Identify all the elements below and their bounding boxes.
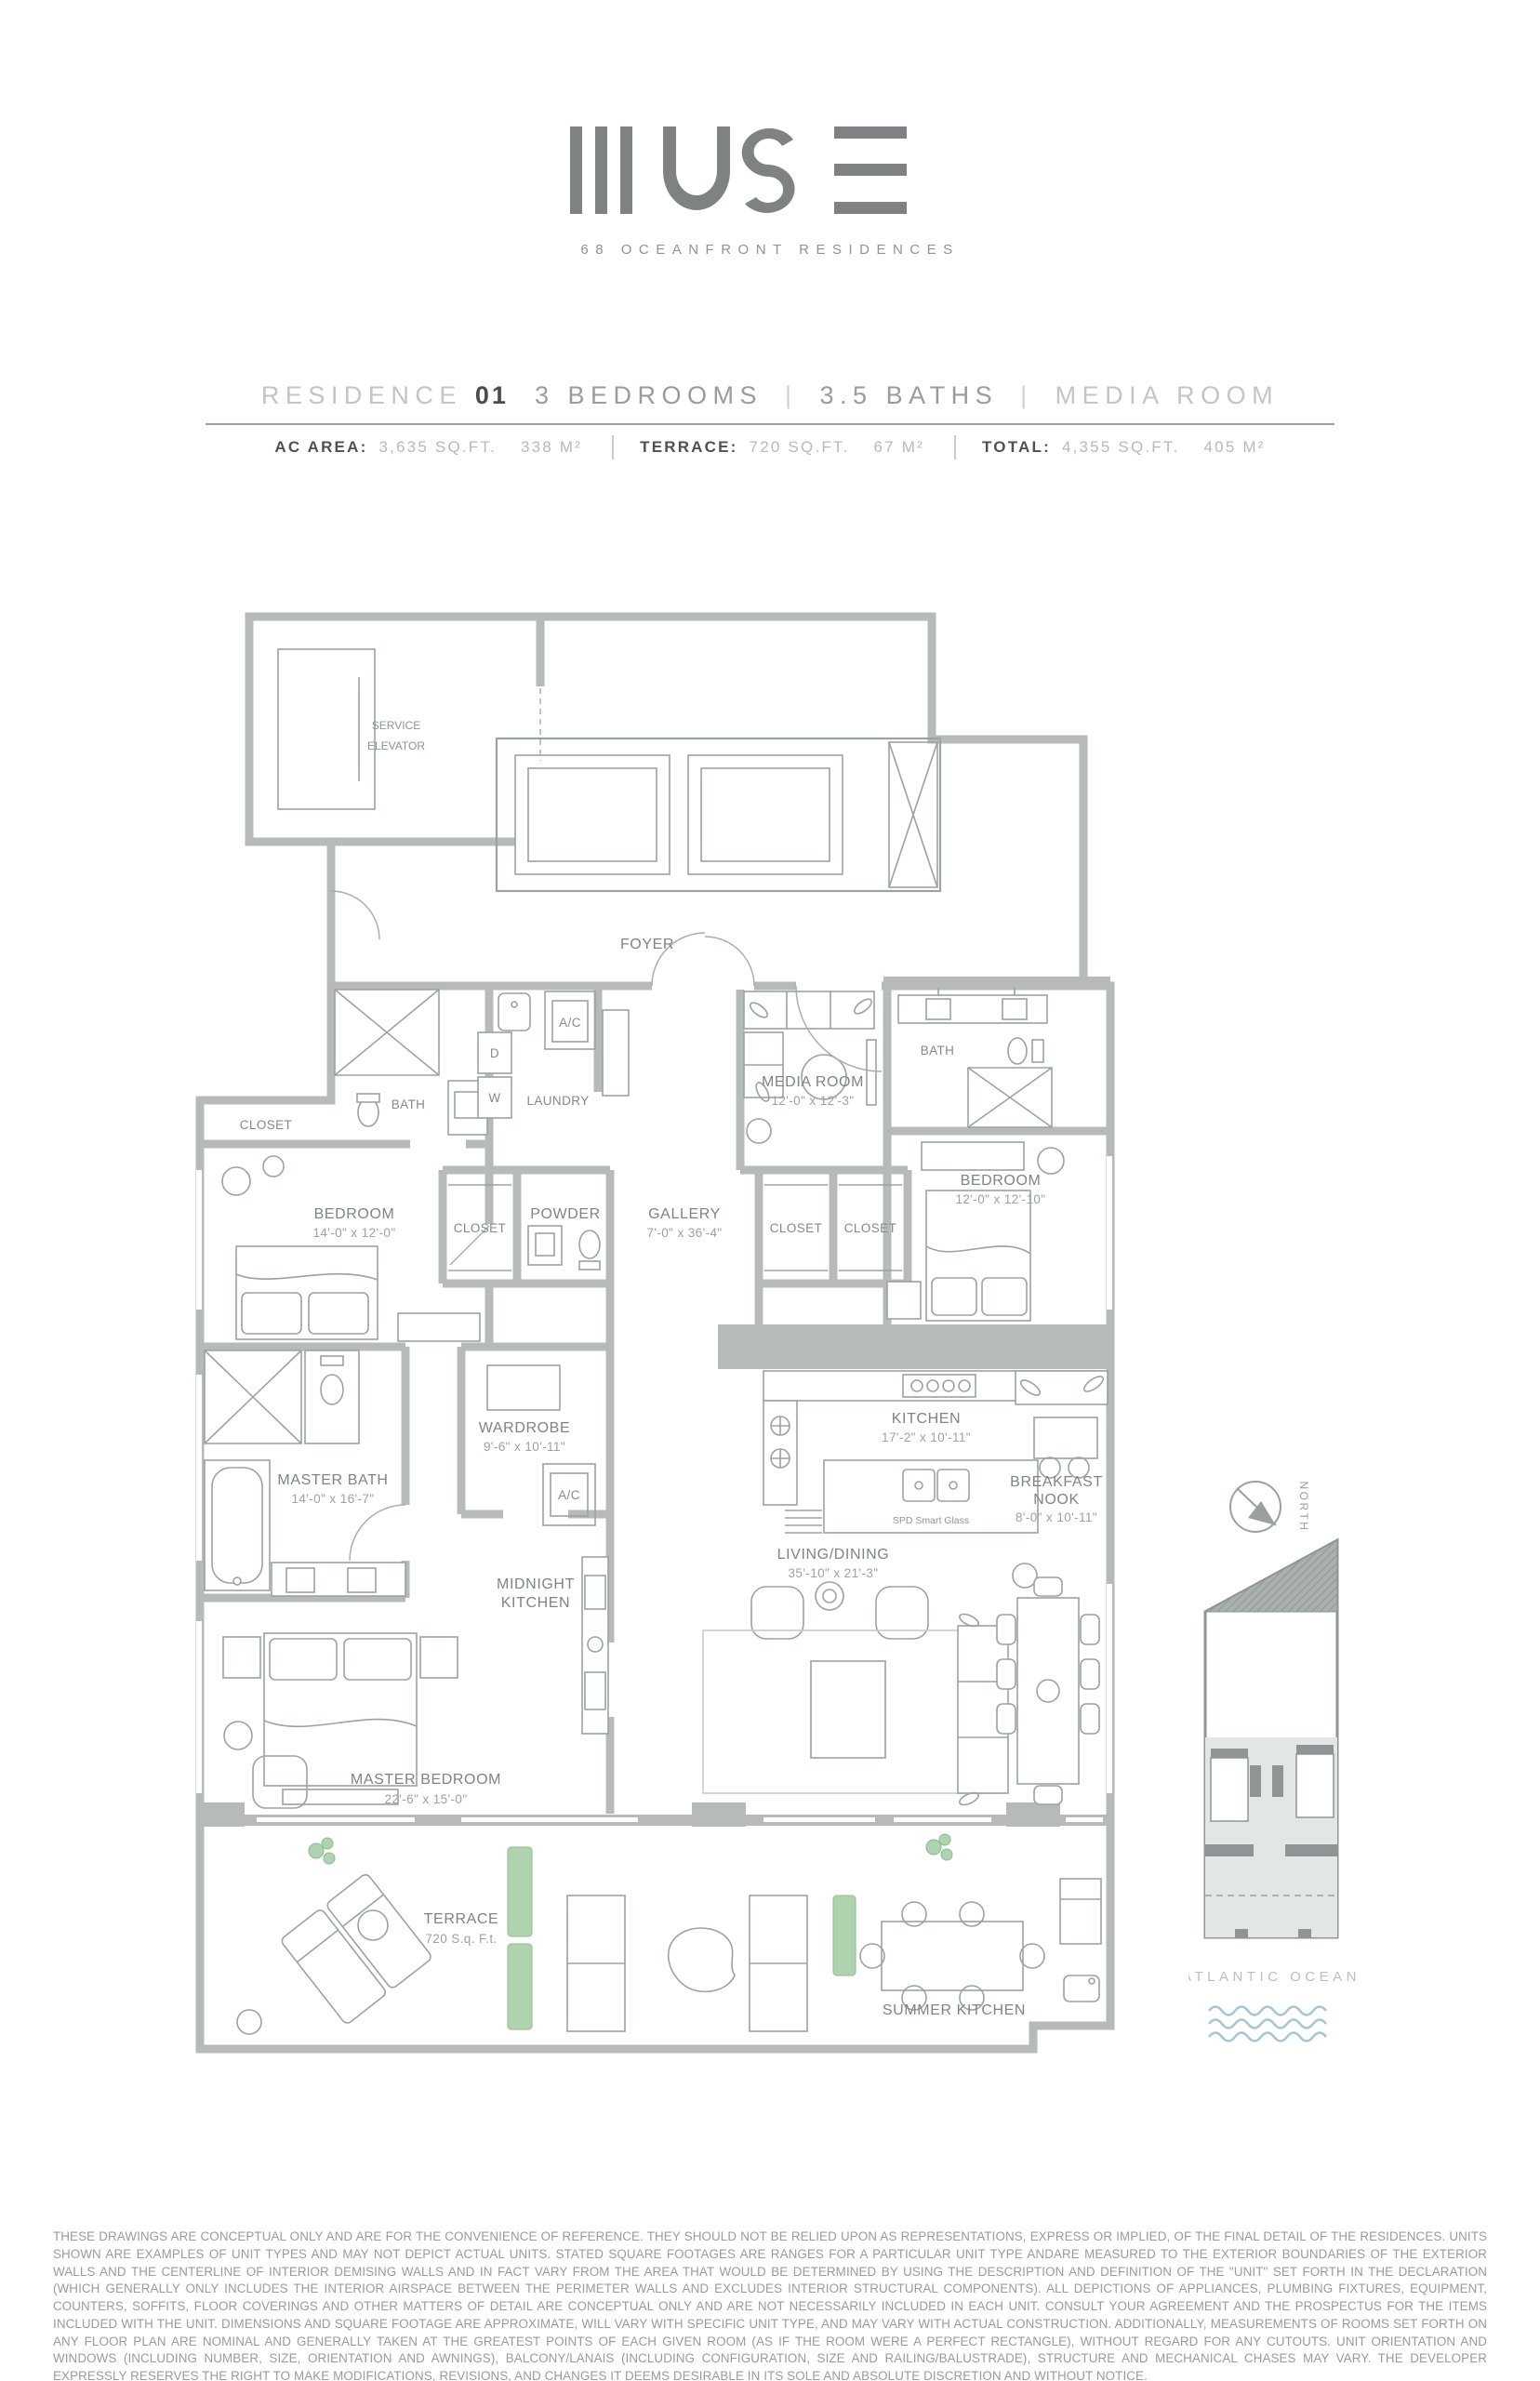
brand-tagline: 68 OCEANFRONT RESIDENCES (580, 242, 959, 258)
label-terrace: TERRACE (424, 1911, 499, 1927)
baths-label: 3.5 BATHS (820, 381, 999, 409)
label-foyer: FOYER (620, 937, 674, 952)
residence-title: RESIDENCE 01 3 BEDROOMS | 3.5 BATHS | ME… (206, 381, 1334, 410)
total-sqft: 4,355 SQ.FT. (1062, 438, 1180, 457)
label-service-elevator: SERVICE (372, 719, 420, 732)
label-closet-1: CLOSET (240, 1118, 292, 1132)
ac-area-label: AC AREA: (274, 438, 367, 457)
label-bath-2: BATH (921, 1044, 955, 1057)
brand-logo: 68 OCEANFRONT RESIDENCES (0, 126, 1540, 258)
spec-divider (954, 435, 956, 459)
label-wardrobe: WARDROBE (479, 1420, 570, 1436)
label-spd-glass: SPD Smart Glass (893, 1515, 969, 1526)
separator: | (1011, 381, 1042, 409)
terrace-label: TERRACE: (640, 438, 737, 457)
label-washer: W (488, 1091, 500, 1105)
total-m2: 405 M² (1204, 438, 1266, 457)
label-powder: POWDER (530, 1206, 601, 1222)
floorplan-page: 68 OCEANFRONT RESIDENCES RESIDENCE 01 3 … (0, 0, 1540, 2381)
residence-label: RESIDENCE (261, 381, 462, 409)
floorplan-drawing: SERVICE ELEVATOR FOYER BATH LAUNDRY D W … (182, 575, 1122, 2060)
svg-text:35'-10" x 21'-3": 35'-10" x 21'-3" (789, 1566, 879, 1580)
separator: | (776, 381, 807, 409)
bedrooms-label: 3 BEDROOMS (522, 381, 763, 409)
label-bedroom-2: BEDROOM (314, 1206, 395, 1222)
label-bath-1: BATH (392, 1097, 426, 1111)
label-living-dining: LIVING/DINING (777, 1547, 890, 1563)
total-label: TOTAL: (982, 438, 1051, 457)
keyplan: NORTH ATLANTIC OCEAN (1188, 1458, 1356, 2068)
residence-number: 01 (475, 381, 509, 409)
svg-text:7'-0" x 36'-4": 7'-0" x 36'-4" (646, 1226, 722, 1240)
label-summer-kitchen: SUMMER KITCHEN (883, 2002, 1026, 2018)
svg-text:12'-0" x 12'-10": 12'-0" x 12'-10" (956, 1192, 1046, 1206)
waves-icon (1209, 2007, 1326, 2042)
label-media-room: MEDIA ROOM (762, 1074, 864, 1090)
building-footprint (1205, 1540, 1337, 1937)
north-label: NORTH (1297, 1482, 1310, 1533)
label-breakfast-nook: BREAKFAST (1010, 1474, 1103, 1490)
svg-text:8'-0" x 10'-11": 8'-0" x 10'-11" (1016, 1510, 1097, 1524)
label-dryer: D (490, 1046, 499, 1060)
terrace-m2: 67 M² (874, 438, 924, 457)
header-divider (206, 423, 1334, 425)
label-gallery: GALLERY (648, 1206, 721, 1222)
svg-text:14'-0" x 16'-7": 14'-0" x 16'-7" (291, 1492, 374, 1506)
svg-text:12'-0" x 12'-3": 12'-0" x 12'-3" (771, 1094, 854, 1108)
label-closet-2: CLOSET (454, 1221, 506, 1235)
ac-area-sqft: 3,635 SQ.FT. (378, 438, 497, 457)
svg-text:22'-6" x 15'-0": 22'-6" x 15'-0" (384, 1792, 467, 1806)
svg-text:KITCHEN: KITCHEN (501, 1595, 570, 1611)
label-master-bath: MASTER BATH (277, 1472, 388, 1488)
label-closet-3: CLOSET (770, 1221, 822, 1235)
label-laundry: LAUNDRY (526, 1094, 589, 1108)
label-closet-4: CLOSET (844, 1221, 896, 1235)
svg-text:720 S.q. F.t.: 720 S.q. F.t. (425, 1932, 497, 1946)
mediaroom-label: MEDIA ROOM (1055, 381, 1280, 409)
area-specs: AC AREA: 3,635 SQ.FT. 338 M² TERRACE: 72… (206, 435, 1334, 459)
svg-text:ELEVATOR: ELEVATOR (367, 739, 425, 752)
label-bedroom-3: BEDROOM (961, 1173, 1042, 1189)
label-ac-1: A/C (559, 1016, 581, 1030)
label-kitchen: KITCHEN (892, 1411, 961, 1427)
svg-text:17'-2" x 10'-11": 17'-2" x 10'-11" (882, 1430, 971, 1444)
muse-logo-icon (570, 126, 970, 218)
compass-icon: NORTH (1230, 1482, 1310, 1533)
residence-header: RESIDENCE 01 3 BEDROOMS | 3.5 BATHS | ME… (206, 381, 1334, 459)
terrace-sqft: 720 SQ.FT. (750, 438, 850, 457)
label-ac-2: A/C (558, 1488, 580, 1502)
svg-text:14'-0" x 12'-0": 14'-0" x 12'-0" (312, 1226, 395, 1240)
label-midnight-kitchen: MIDNIGHT (497, 1576, 575, 1592)
svg-text:NOOK: NOOK (1033, 1492, 1080, 1508)
spec-divider (612, 435, 614, 459)
ocean-label: ATLANTIC OCEAN (1188, 1969, 1356, 1985)
ac-area-m2: 338 M² (521, 438, 582, 457)
label-master-bedroom: MASTER BEDROOM (351, 1772, 501, 1788)
legal-disclaimer: THESE DRAWINGS ARE CONCEPTUAL ONLY AND A… (53, 2228, 1487, 2381)
svg-text:9'-6" x 10'-11": 9'-6" x 10'-11" (484, 1440, 565, 1454)
